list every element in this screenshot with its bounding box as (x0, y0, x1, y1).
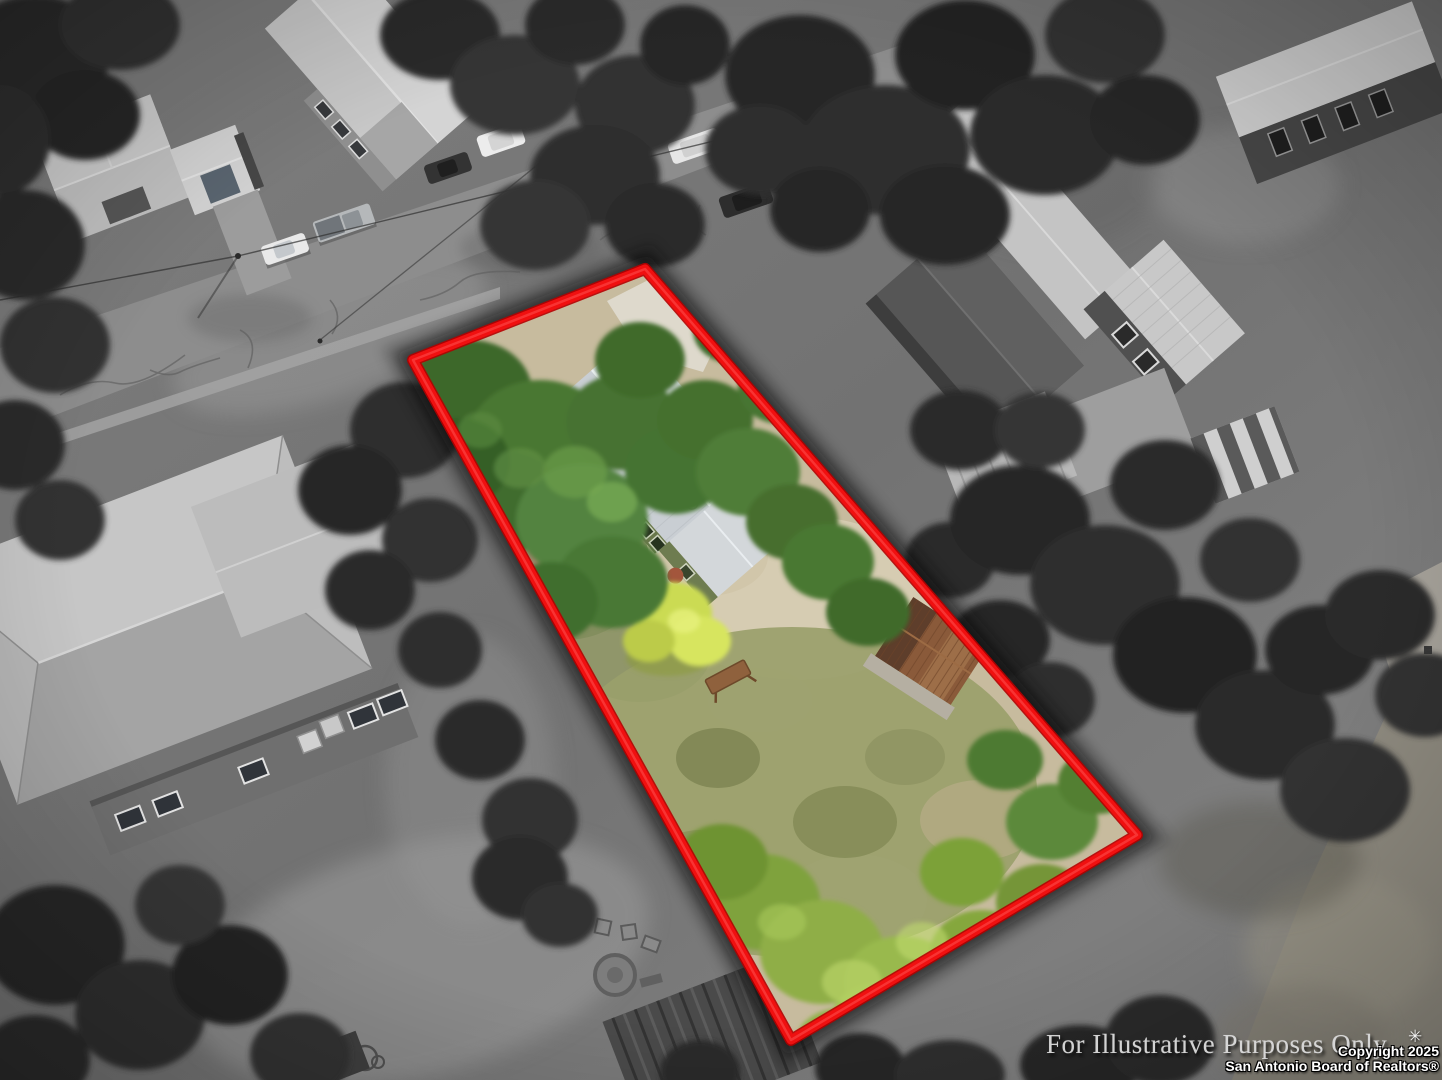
copyright-notice: Copyright 2025 San Antonio Board of Real… (1225, 1044, 1439, 1074)
scene-svg (0, 0, 1442, 1080)
copyright-line2: San Antonio Board of Realtors® (1225, 1059, 1439, 1074)
photo-vignette (0, 0, 1442, 1080)
copyright-line1: Copyright 2025 (1225, 1044, 1439, 1059)
aerial-property-photo: For Illustrative Purposes Only ✳ Copyrig… (0, 0, 1442, 1080)
